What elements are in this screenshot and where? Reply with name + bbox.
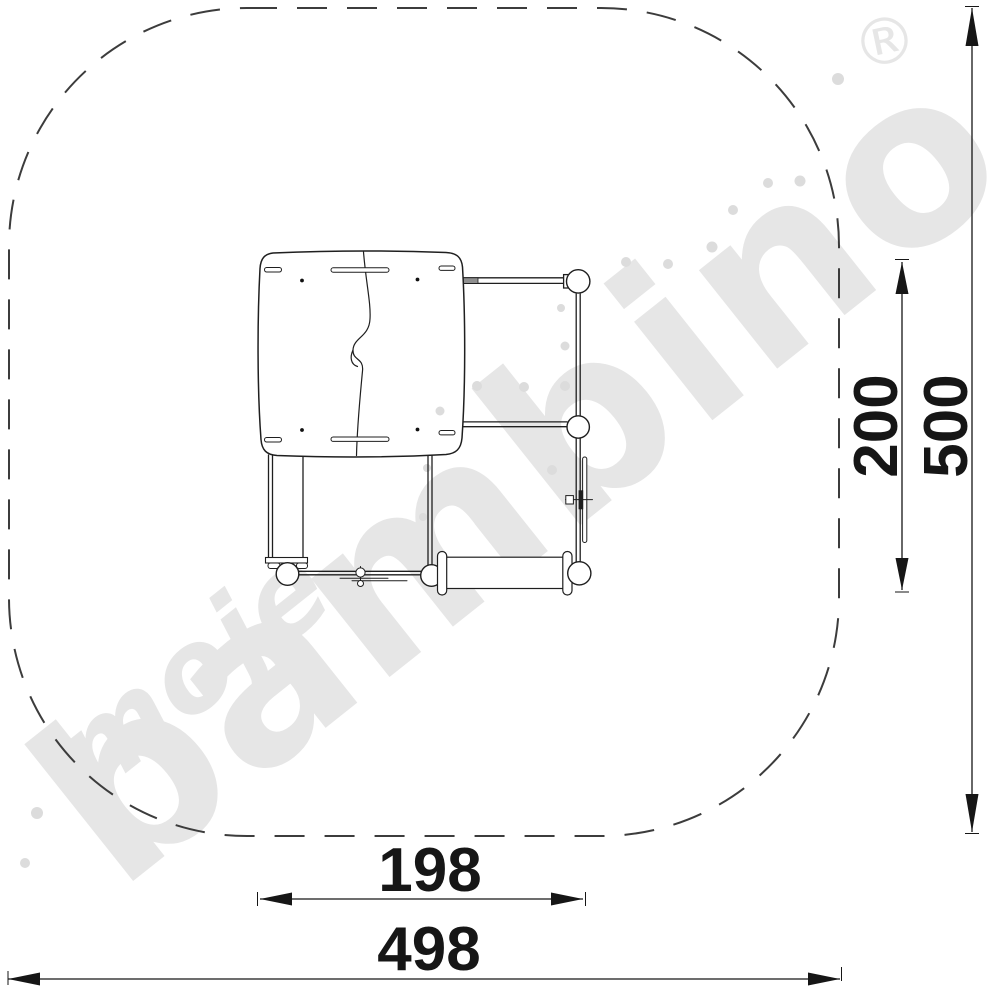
swing-hanger xyxy=(356,568,365,577)
dimension-label-inner-width: 198 xyxy=(378,836,481,905)
dot xyxy=(560,381,570,391)
bottom-bench xyxy=(438,552,591,596)
post-bottom-right xyxy=(568,562,591,585)
roof-outline xyxy=(258,251,465,457)
dot xyxy=(561,342,570,351)
slot xyxy=(439,431,455,435)
bolt xyxy=(300,428,304,432)
dot xyxy=(519,382,529,392)
slot xyxy=(439,266,455,270)
arrowhead-down xyxy=(966,794,979,832)
post-top-right xyxy=(567,270,590,293)
dot xyxy=(728,205,738,215)
slot xyxy=(331,268,389,272)
arrowhead-right xyxy=(551,893,583,906)
playground-plan-drawing: moje bambino ® xyxy=(0,0,1000,1000)
dot xyxy=(436,407,445,416)
bolt xyxy=(300,279,304,283)
foot-tab xyxy=(297,563,308,569)
dimension-inner-width: 198 xyxy=(258,836,586,906)
arrowhead-left xyxy=(8,973,40,986)
clamp-tab xyxy=(566,496,574,504)
arrowhead-up xyxy=(966,8,979,46)
swing-hanger-pin xyxy=(358,581,364,587)
dimension-label-total-width: 498 xyxy=(377,915,480,984)
dot xyxy=(547,465,557,475)
post-mid-right xyxy=(567,416,589,438)
technical-drawing-page: moje bambino ® xyxy=(0,0,1000,1000)
bench-end-cap xyxy=(438,552,447,596)
dimension-label-total-height: 500 xyxy=(912,374,981,477)
dot xyxy=(795,176,806,187)
dot xyxy=(419,513,427,521)
dot xyxy=(31,807,43,819)
dot xyxy=(423,464,431,472)
arrowhead-down xyxy=(896,558,909,590)
slot xyxy=(331,437,389,441)
post-bottom-left xyxy=(276,563,299,586)
clamp-block xyxy=(579,490,584,509)
dot xyxy=(472,381,482,391)
bolt xyxy=(416,278,420,282)
arrowhead-right xyxy=(808,973,840,986)
dot xyxy=(707,242,718,253)
slot xyxy=(265,268,282,273)
bolt xyxy=(416,428,420,432)
dot xyxy=(20,858,30,868)
dot xyxy=(763,178,773,188)
roof-panel xyxy=(258,251,465,457)
dot xyxy=(557,304,565,312)
arrowhead-left xyxy=(260,893,292,906)
dot xyxy=(832,73,844,85)
dimension-label-inner-height: 200 xyxy=(842,374,911,477)
registered-trademark-icon: ® xyxy=(846,0,924,86)
dimension-total-width: 498 xyxy=(8,915,842,986)
dot xyxy=(621,257,631,267)
slot xyxy=(265,438,282,443)
bench-board xyxy=(446,557,564,588)
dot xyxy=(663,259,673,269)
